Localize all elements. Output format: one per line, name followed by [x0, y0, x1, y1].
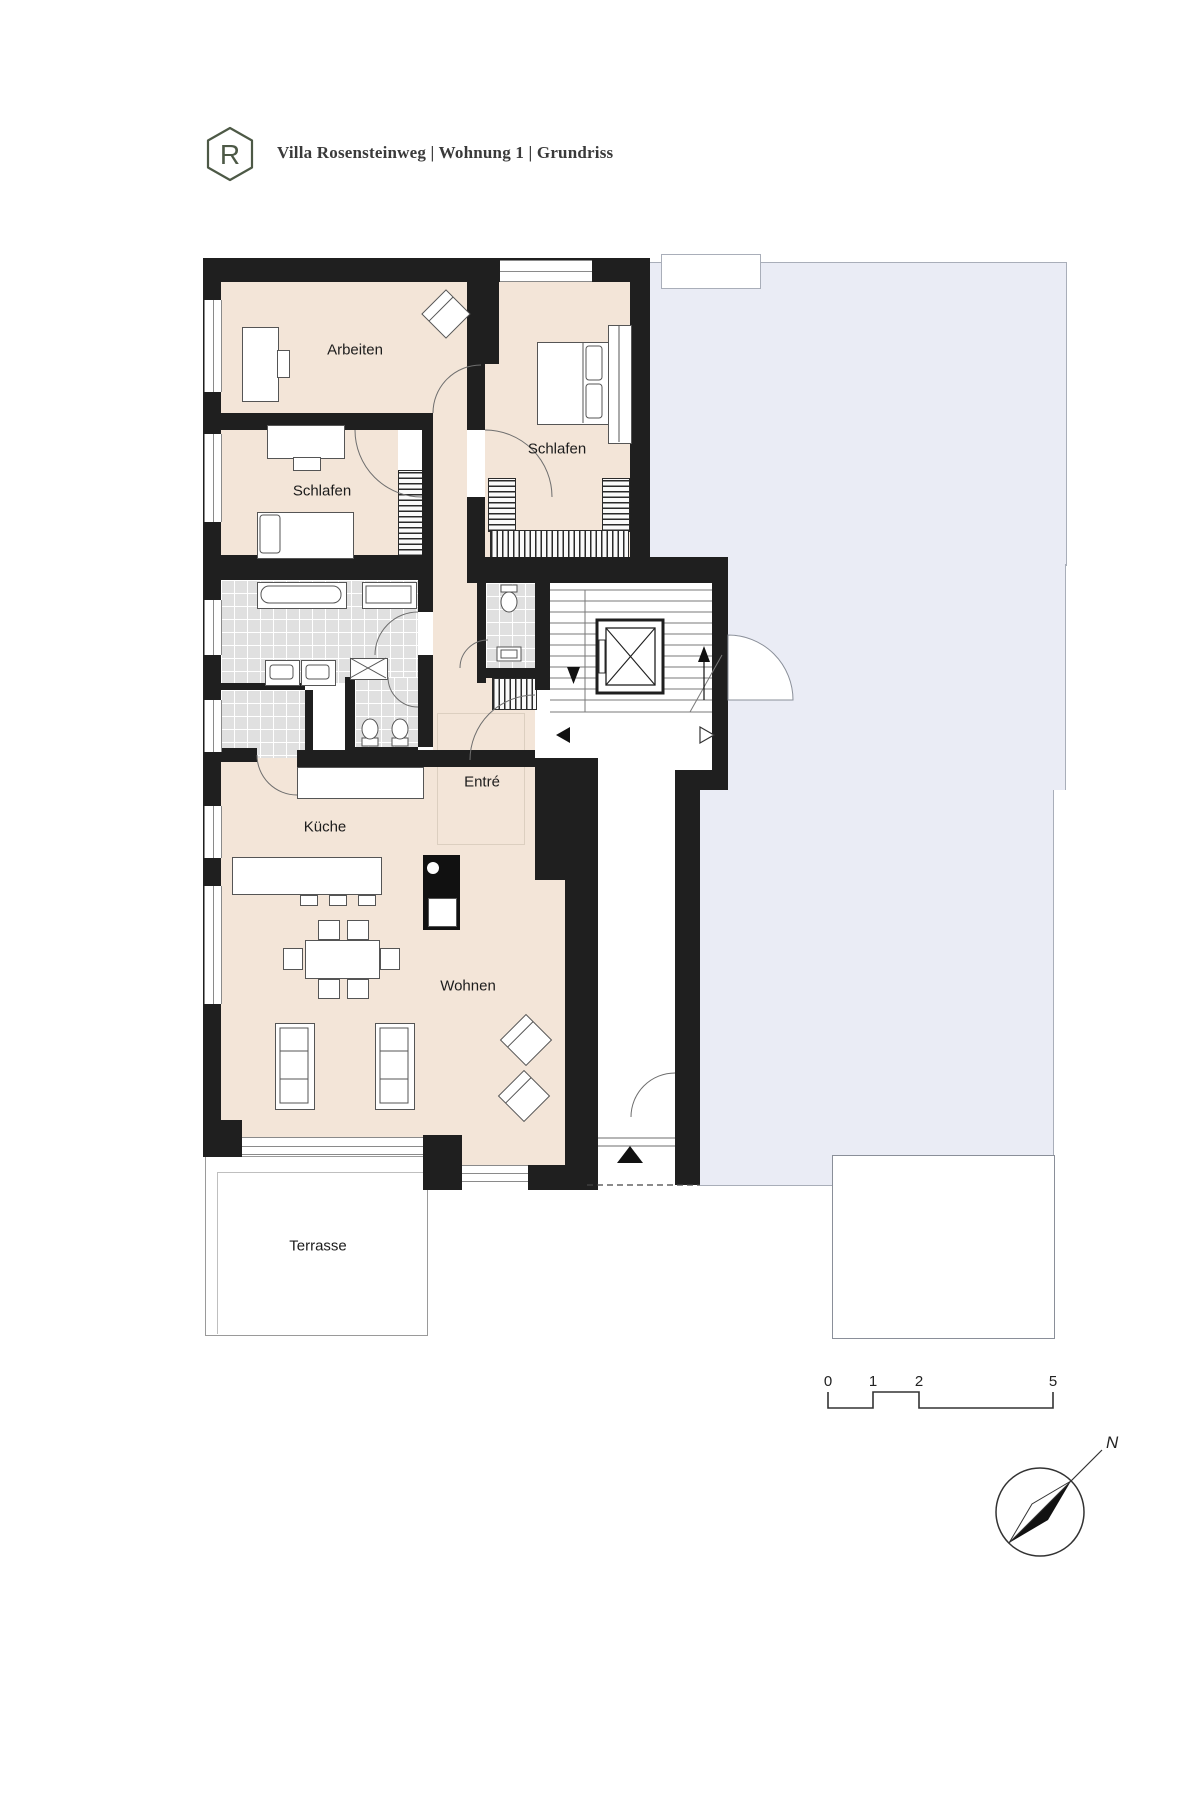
room-label-terrasse: Terrasse — [289, 1238, 347, 1255]
armchair — [499, 1071, 550, 1122]
neighbor-entry-arrow — [700, 727, 714, 743]
neighbor-door-swing — [728, 635, 793, 700]
flat-entry-arrow — [556, 727, 570, 743]
scale-bar: 0 1 2 5 — [824, 1373, 1057, 1408]
scale-tick-0: 0 — [824, 1373, 832, 1390]
scale-tick-1: 1 — [869, 1373, 877, 1390]
floor-plan-page: R Villa Rosensteinweg | Wohnung 1 | Grun… — [0, 0, 1200, 1800]
room-label-entree: Entré — [464, 774, 500, 791]
room-label-wohnen: Wohnen — [440, 978, 496, 995]
room-label-arbeiten: Arbeiten — [327, 342, 383, 359]
room-label-kueche: Küche — [304, 819, 347, 836]
bath-fixture-details — [261, 586, 411, 679]
scale-tick-2: 2 — [915, 1373, 923, 1390]
north-label: N — [1106, 1433, 1119, 1452]
north-arrow-compass: N — [996, 1433, 1119, 1556]
room-label-schlafen-top: Schlafen — [528, 441, 586, 458]
armchair — [422, 290, 470, 338]
building-entrance-arrow — [617, 1146, 643, 1163]
elevator-icon — [597, 620, 663, 693]
fireplace-hob — [427, 862, 439, 874]
sofa-details — [280, 1028, 408, 1103]
armchair — [501, 1015, 552, 1066]
toilet-icons — [362, 585, 521, 746]
room-label-schlafen-left: Schlafen — [293, 483, 351, 500]
scale-tick-5: 5 — [1049, 1373, 1057, 1390]
plan-linework: 0 1 2 5 N — [0, 0, 1200, 1800]
bed-details — [260, 325, 619, 553]
